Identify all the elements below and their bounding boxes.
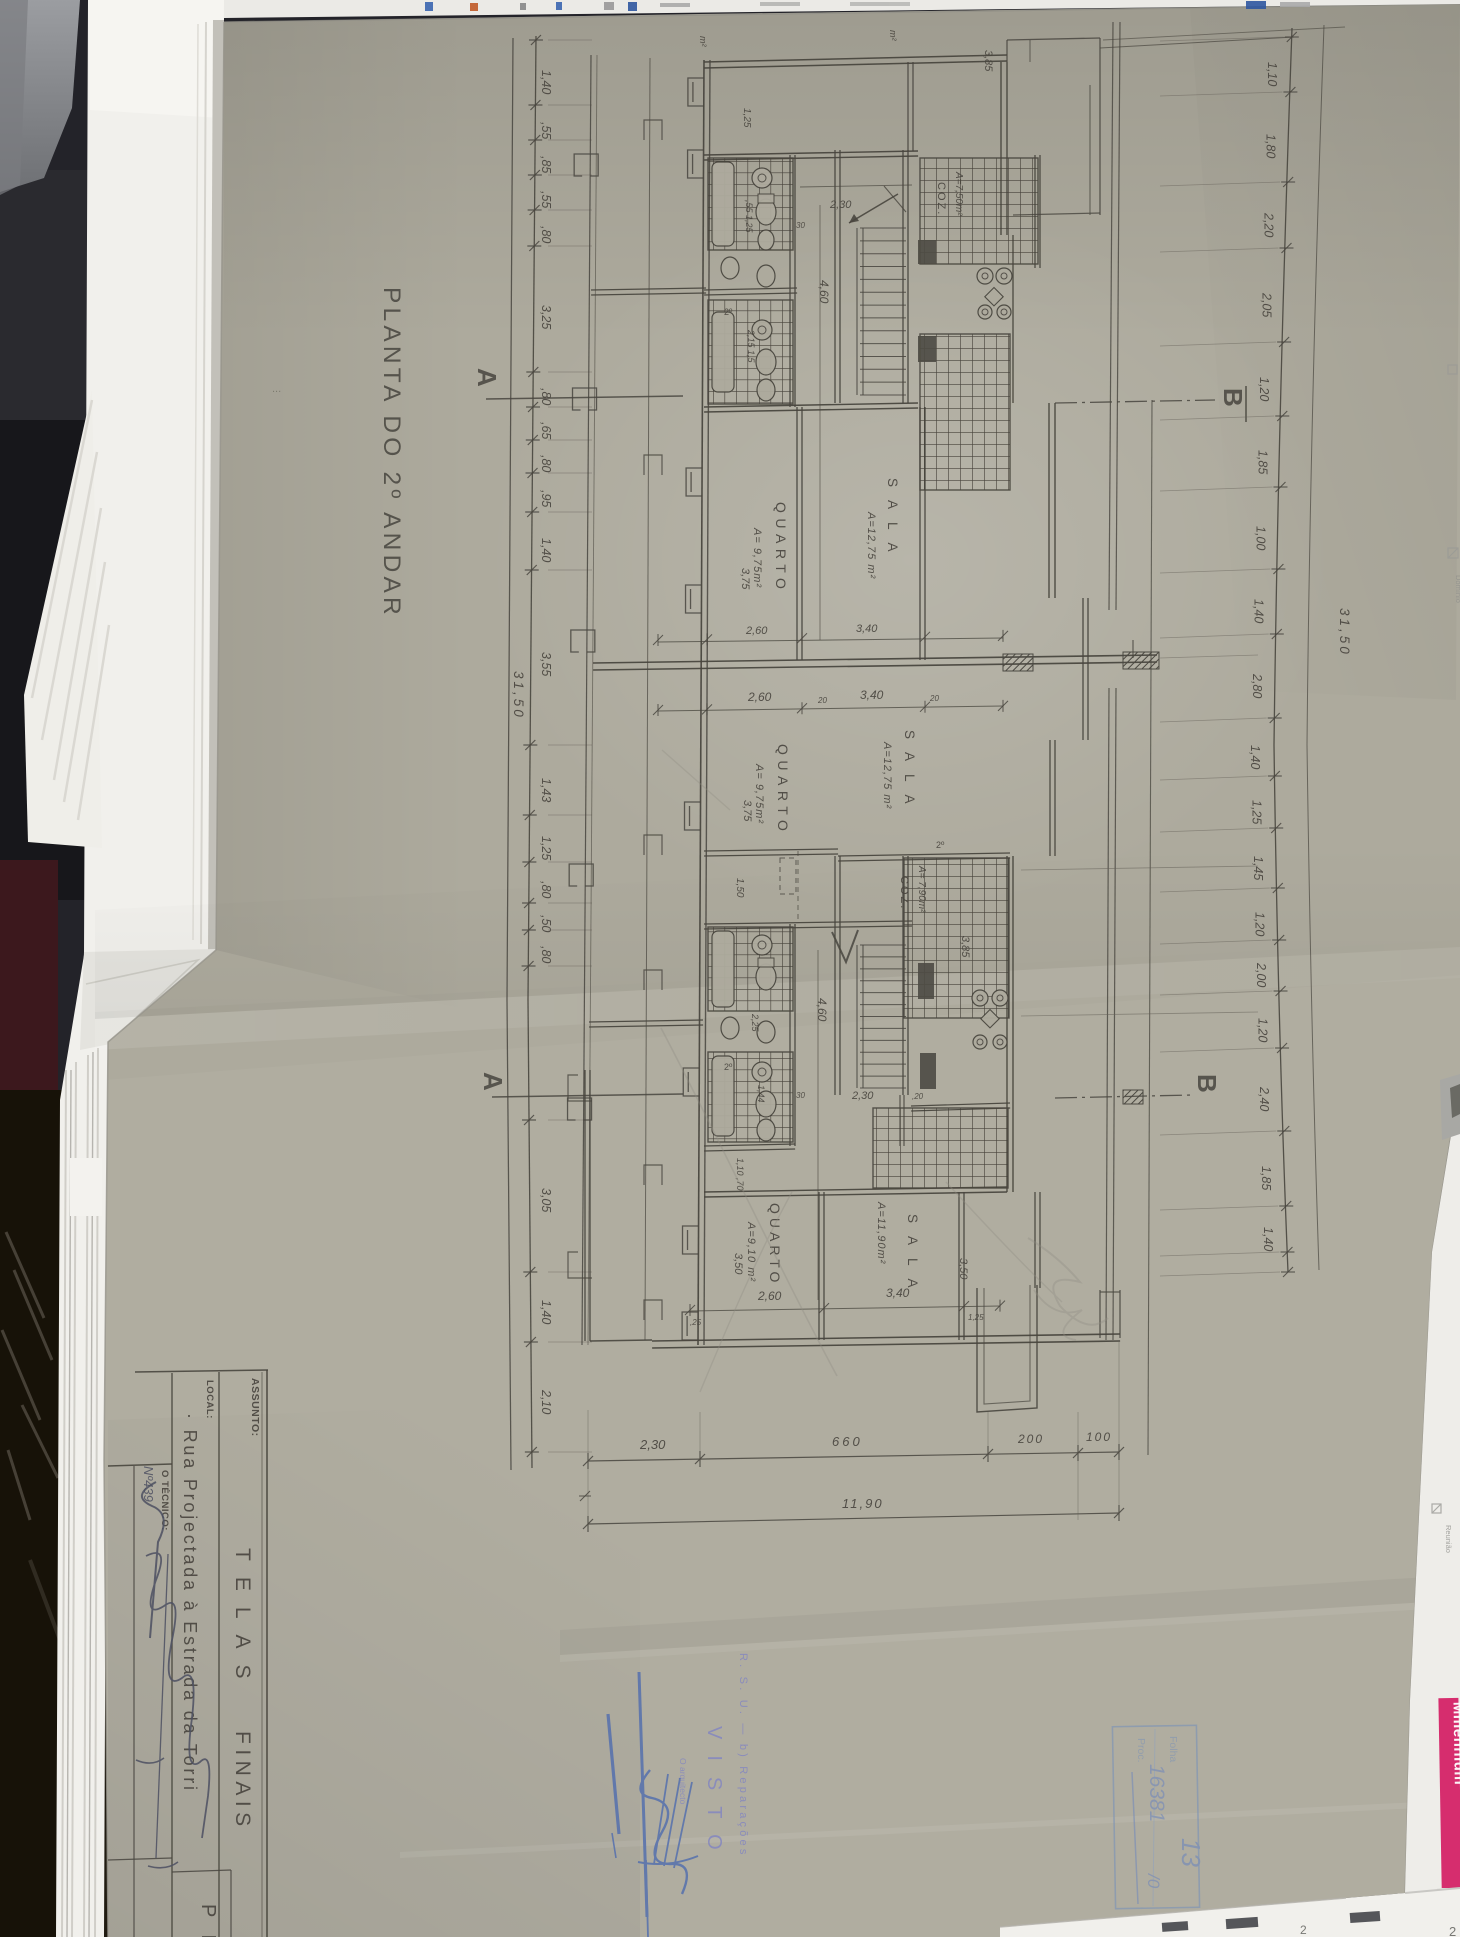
svg-text:B: B	[1192, 1074, 1222, 1093]
svg-text:3,50: 3,50	[957, 1258, 969, 1280]
svg-text:,85: ,85	[539, 156, 553, 173]
svg-text:ASSUNTO:: ASSUNTO:	[249, 1378, 261, 1437]
svg-text:20: 20	[929, 694, 939, 703]
svg-text:16381: 16381	[1145, 1764, 1168, 1822]
svg-text:1,40: 1,40	[539, 70, 553, 94]
svg-text:1,40: 1,40	[539, 1300, 553, 1324]
svg-text:B: B	[1218, 388, 1248, 407]
svg-text:1,50: 1,50	[734, 878, 745, 898]
svg-text:2,60: 2,60	[747, 690, 772, 704]
svg-text:P L: P L	[197, 1904, 219, 1937]
svg-text:3,85: 3,85	[982, 50, 994, 72]
svg-text:2,00: 2,00	[1254, 962, 1268, 987]
svg-text:FINAIS: FINAIS	[231, 1731, 254, 1832]
svg-text:30: 30	[796, 221, 805, 230]
svg-text:30: 30	[796, 1091, 805, 1100]
svg-text:100: 100	[1086, 1430, 1112, 1444]
svg-text:2º: 2º	[936, 840, 945, 850]
svg-text:3,75: 3,75	[741, 800, 753, 822]
svg-text:31,50: 31,50	[1337, 608, 1352, 657]
svg-text:PLANTA DO 2º ANDAR: PLANTA DO 2º ANDAR	[378, 287, 405, 619]
svg-text:2º: 2º	[724, 307, 733, 317]
svg-text:,55 1,25: ,55 1,25	[744, 200, 754, 234]
svg-text:2: 2	[1449, 1924, 1456, 1937]
svg-text:1,10: 1,10	[1265, 62, 1279, 86]
svg-text:3,25: 3,25	[539, 305, 553, 329]
svg-text:2,30: 2,30	[851, 1090, 874, 1102]
svg-text:Proc.: Proc.	[1135, 1738, 1147, 1763]
svg-text:1,85: 1,85	[1259, 1166, 1273, 1190]
svg-text:2,25: 2,25	[750, 1013, 760, 1033]
svg-text:,80: ,80	[539, 946, 553, 963]
svg-text:A=12,75 m²: A=12,75 m²	[881, 741, 893, 809]
svg-text:,80: ,80	[539, 388, 553, 405]
svg-text:,25: ,25	[690, 1318, 702, 1327]
svg-text:1,20: 1,20	[1257, 377, 1271, 401]
svg-text:,55: ,55	[539, 122, 553, 139]
svg-text:A=7,50m²: A=7,50m²	[953, 171, 964, 216]
svg-text:QUARTO: QUARTO	[773, 502, 789, 594]
svg-text:,95: ,95	[539, 490, 553, 507]
svg-text:1,25: 1,25	[968, 1313, 984, 1322]
svg-text:2,30: 2,30	[639, 1437, 666, 1452]
svg-text:1,40: 1,40	[1252, 599, 1266, 623]
svg-text:,80: ,80	[539, 455, 553, 472]
svg-text:3,75: 3,75	[739, 568, 751, 590]
svg-text:Domínio: Domínio	[1454, 575, 1460, 603]
svg-text:Folha: Folha	[1167, 1736, 1179, 1762]
svg-text:1,45: 1,45	[1251, 856, 1265, 880]
svg-text:2,15 1,5: 2,15 1,5	[746, 329, 756, 364]
svg-text:A=12,75 m²: A=12,75 m²	[865, 511, 877, 579]
svg-text:1,25: 1,25	[741, 108, 752, 128]
svg-text:COZ.: COZ.	[898, 876, 910, 910]
svg-text:A= 9,75m²: A= 9,75m²	[753, 763, 765, 824]
svg-text:2,80: 2,80	[1250, 673, 1264, 698]
svg-text:QUARTO: QUARTO	[775, 744, 791, 836]
svg-text:TELAS: TELAS	[231, 1548, 254, 1695]
svg-text:2,30: 2,30	[829, 199, 852, 211]
svg-text:A: A	[478, 1072, 508, 1091]
svg-text:,65: ,65	[539, 422, 553, 439]
svg-text:SALA: SALA	[885, 478, 900, 565]
svg-text:COZ.: COZ.	[935, 182, 947, 216]
svg-text:A= 9,75m²: A= 9,75m²	[751, 527, 763, 588]
svg-text:2: 2	[1300, 1923, 1307, 1937]
svg-text:2º: 2º	[724, 1062, 733, 1072]
svg-text:A: A	[472, 368, 502, 387]
svg-text:11,90: 11,90	[842, 1496, 884, 1511]
svg-text:2,20: 2,20	[1261, 212, 1275, 237]
svg-text:3,40: 3,40	[860, 688, 884, 702]
svg-text:3,05: 3,05	[539, 1188, 553, 1212]
svg-text:2,40: 2,40	[1257, 1086, 1271, 1111]
svg-text:,20: ,20	[912, 1092, 924, 1101]
svg-text:A=11,90m²: A=11,90m²	[875, 1201, 887, 1264]
svg-text:1,25: 1,25	[1249, 800, 1263, 824]
svg-text:31,50: 31,50	[511, 671, 526, 720]
svg-text:1,43: 1,43	[539, 778, 553, 802]
svg-text:660: 660	[832, 1434, 863, 1449]
svg-text:1,20: 1,20	[1255, 1018, 1269, 1042]
svg-text:Millennium: Millennium	[1449, 1702, 1460, 1786]
svg-text:m²: m²	[698, 36, 708, 47]
svg-text:VISTO: VISTO	[703, 1726, 725, 1866]
svg-text:,80: ,80	[539, 881, 553, 898]
svg-text:SALA: SALA	[902, 730, 917, 817]
svg-text:SALA: SALA	[905, 1214, 920, 1301]
svg-text:,55: ,55	[539, 191, 553, 208]
svg-text:1,40: 1,40	[539, 538, 553, 562]
svg-text:LOCAL:: LOCAL:	[204, 1380, 215, 1419]
svg-text:Reunião: Reunião	[1444, 1525, 1453, 1553]
svg-text:13: 13	[1176, 1838, 1206, 1867]
svg-text:3,40: 3,40	[856, 623, 878, 635]
svg-text:1,40: 1,40	[1248, 745, 1262, 769]
svg-text:1,25: 1,25	[539, 836, 553, 860]
svg-text:2,05: 2,05	[1259, 292, 1273, 317]
svg-text:A= 7,90m²: A= 7,90m²	[916, 865, 927, 913]
svg-text:4,60: 4,60	[815, 998, 829, 1022]
svg-text:1,80: 1,80	[1263, 134, 1277, 158]
svg-text:200: 200	[1017, 1432, 1044, 1446]
svg-text:1,44: 1,44	[756, 1085, 766, 1103]
svg-text:/0: /0	[1144, 1873, 1163, 1889]
svg-text:2,60: 2,60	[757, 1289, 782, 1303]
svg-text:4,60: 4,60	[817, 280, 831, 304]
svg-text:2,60: 2,60	[745, 625, 768, 637]
svg-text:1,00: 1,00	[1253, 526, 1267, 550]
svg-text:3,50: 3,50	[732, 1253, 744, 1275]
svg-text:,80: ,80	[539, 226, 553, 243]
svg-text:1,20: 1,20	[1252, 912, 1266, 936]
svg-text:3,85: 3,85	[959, 936, 971, 958]
svg-text:...: ...	[272, 383, 281, 395]
svg-text:1,40: 1,40	[1261, 1227, 1275, 1251]
svg-text:R. S. U. — b) Reparações: R. S. U. — b) Reparações	[737, 1653, 749, 1858]
svg-text:2,10: 2,10	[539, 1389, 553, 1414]
svg-text:3,55: 3,55	[539, 652, 553, 676]
svg-text:m²: m²	[888, 30, 898, 41]
svg-text:20: 20	[817, 696, 827, 705]
svg-text:1,85: 1,85	[1255, 450, 1269, 474]
